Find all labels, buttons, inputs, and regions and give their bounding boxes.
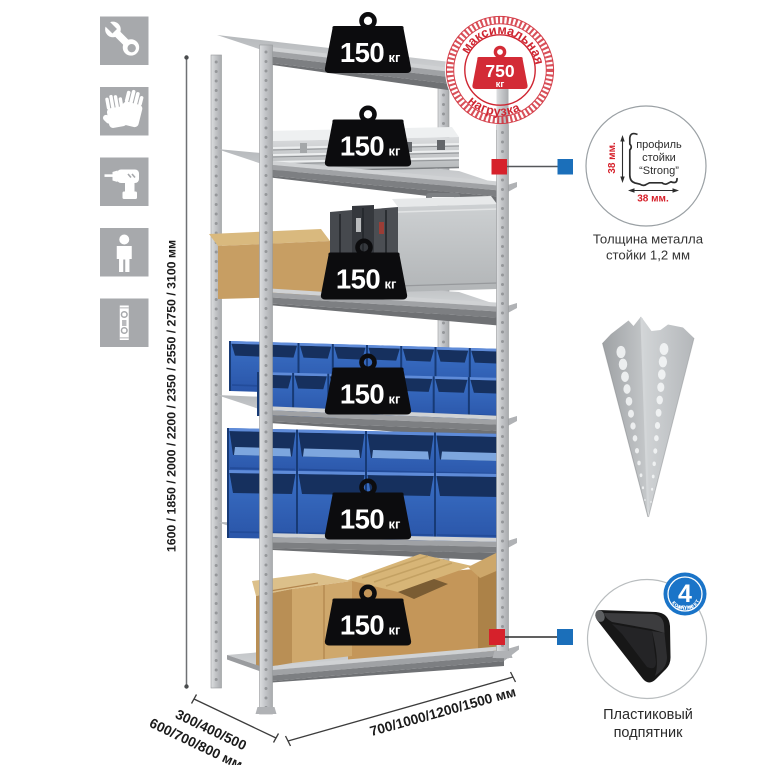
svg-text:подпятник: подпятник [614, 725, 684, 741]
svg-text:профиль: профиль [636, 139, 682, 151]
svg-text:1600 / 1850 / 2000 / 2200 / 23: 1600 / 1850 / 2000 / 2200 / 2350 / 2550 … [165, 240, 179, 552]
svg-text:Толщина металла: Толщина металла [593, 232, 704, 247]
svg-text:стойки: стойки [642, 152, 676, 164]
svg-text:Пластиковый: Пластиковый [603, 707, 693, 723]
svg-text:750: 750 [485, 61, 514, 81]
svg-text:38 мм.: 38 мм. [637, 194, 669, 205]
svg-text:“Strong”: “Strong” [639, 165, 679, 177]
svg-text:38 мм.: 38 мм. [607, 142, 618, 174]
svg-text:стойки 1,2 мм: стойки 1,2 мм [606, 248, 690, 263]
svg-text:кг: кг [496, 79, 505, 90]
